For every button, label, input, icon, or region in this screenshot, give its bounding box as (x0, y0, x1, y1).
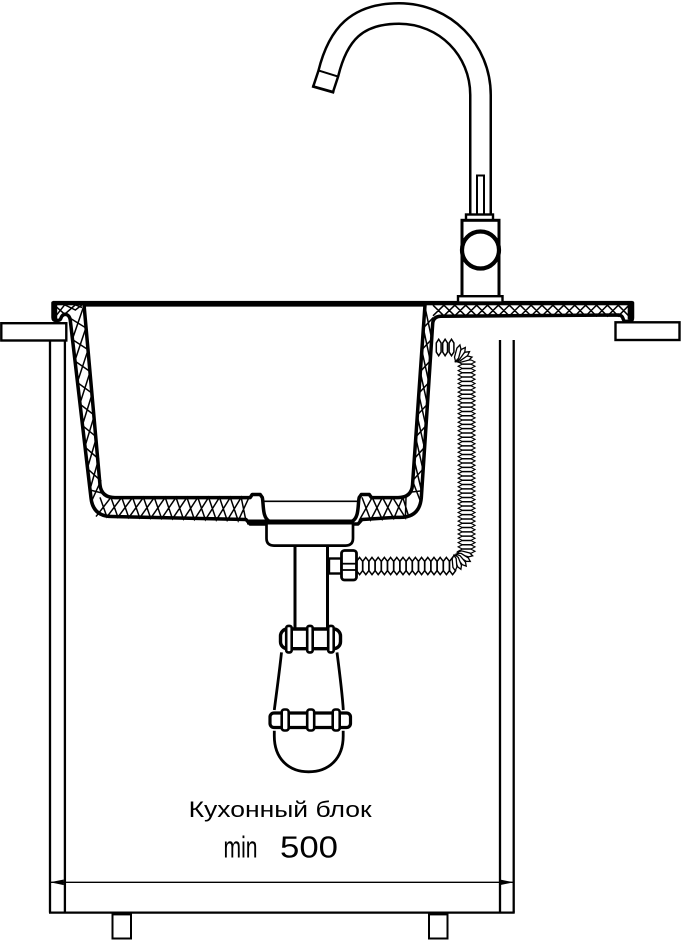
svg-text:500: 500 (280, 829, 338, 864)
svg-text:Кухонный блок: Кухонный блок (189, 797, 372, 822)
svg-text:min: min (224, 829, 258, 864)
